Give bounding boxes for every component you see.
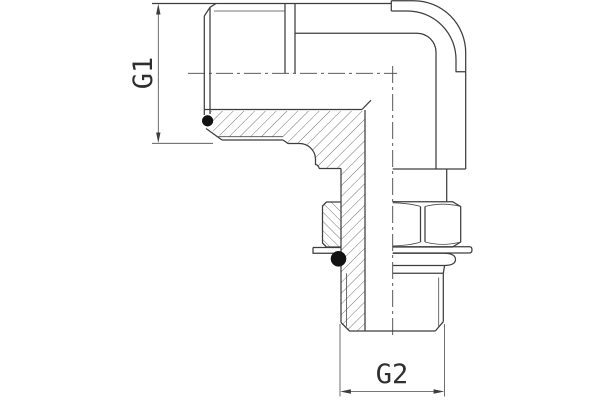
o-ring-bottom-port (331, 251, 346, 266)
g2-arrow-right (434, 389, 445, 393)
g2-dimension-label: G2 (376, 359, 409, 390)
g1-arrow-down (156, 133, 160, 144)
g1-arrow-up (156, 4, 160, 15)
technical-drawing-page: G1 G2 (0, 0, 600, 400)
o-ring-left-port (202, 115, 213, 126)
fitting-drawing-svg: G1 G2 (0, 0, 600, 400)
g2-arrow-left (340, 389, 351, 393)
bottom-port-thread (393, 253, 456, 326)
g1-dimension-label: G1 (128, 57, 159, 90)
